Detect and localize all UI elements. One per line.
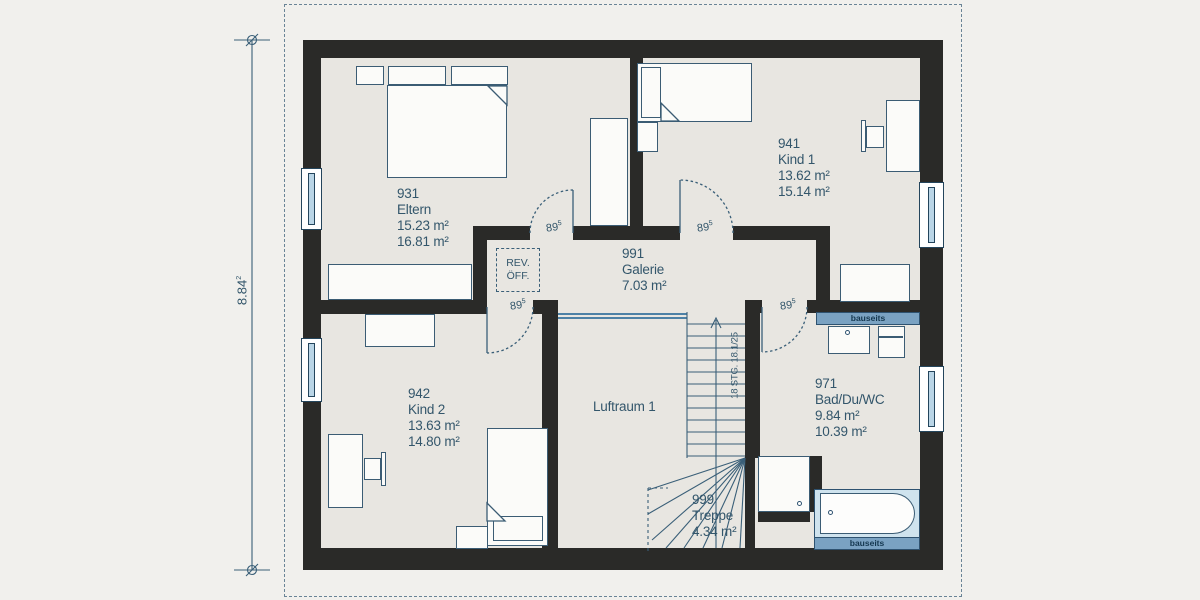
stair-note: 18 STG. 18.1/25 [730, 320, 741, 412]
room-id: 971 [815, 376, 884, 392]
room-area: 10.39 m² [815, 424, 884, 440]
room-name: Bad/Du/WC [815, 392, 884, 408]
room-id: 942 [408, 386, 460, 402]
room-area: 7.03 m² [622, 278, 666, 294]
plan-linework [0, 0, 1200, 600]
room-label-kind2: 942 Kind 2 13.63 m² 14.80 m² [408, 386, 460, 450]
door-bad [762, 307, 807, 352]
room-name: Kind 2 [408, 402, 460, 418]
door-width-sup: 5 [557, 220, 562, 227]
fold-bed-kind2 [487, 503, 505, 521]
room-id: 991 [622, 246, 666, 262]
room-label-treppe: 999 Treppe 4.34 m² [692, 492, 736, 540]
room-area: 15.23 m² [397, 218, 449, 234]
room-label-eltern: 931 Eltern 15.23 m² 16.81 m² [397, 186, 449, 250]
revision-opening-box: REV. ÖFF. [496, 248, 540, 292]
room-area: 15.14 m² [778, 184, 830, 200]
room-name: Luftraum 1 [593, 399, 656, 415]
door-width-sup: 5 [791, 298, 796, 305]
revision-line1: REV. [506, 257, 530, 270]
revision-line2: ÖFF. [507, 270, 530, 283]
room-name: Eltern [397, 202, 449, 218]
door-width-label-bad: 895 [779, 298, 797, 313]
door-width-label-kind2: 895 [509, 298, 527, 313]
room-area: 16.81 m² [397, 234, 449, 250]
stair-winder [740, 458, 745, 548]
room-name: Treppe [692, 508, 736, 524]
room-id: 941 [778, 136, 830, 152]
dimension-value: 8.84 [235, 280, 250, 305]
room-id: 999 [692, 492, 736, 508]
room-label-kind1: 941 Kind 1 13.62 m² 15.14 m² [778, 136, 830, 200]
fold-bed-kind1 [661, 103, 679, 121]
fold-bed-eltern [488, 86, 507, 105]
door-width-label-eltern: 895 [545, 220, 563, 235]
room-area: 13.62 m² [778, 168, 830, 184]
room-label-bad: 971 Bad/Du/WC 9.84 m² 10.39 m² [815, 376, 884, 440]
room-name: Galerie [622, 262, 666, 278]
dimension-sup: 2 [236, 276, 243, 280]
door-kind2 [487, 307, 533, 353]
room-area: 14.80 m² [408, 434, 460, 450]
door-arc [487, 307, 533, 353]
floor-plan-canvas: bauseits bauseits [0, 0, 1200, 600]
room-label-galerie: 991 Galerie 7.03 m² [622, 246, 666, 294]
room-area: 4.34 m² [692, 524, 736, 540]
room-label-luftraum: Luftraum 1 [593, 399, 656, 415]
door-arc [762, 307, 807, 352]
door-width-sup: 5 [708, 220, 713, 227]
door-width-sup: 5 [521, 298, 526, 305]
room-name: Kind 1 [778, 152, 830, 168]
door-width-label-kind1: 895 [696, 220, 714, 235]
room-area: 9.84 m² [815, 408, 884, 424]
room-area: 13.63 m² [408, 418, 460, 434]
room-id: 931 [397, 186, 449, 202]
dimension-label: 8.842 [235, 267, 250, 315]
